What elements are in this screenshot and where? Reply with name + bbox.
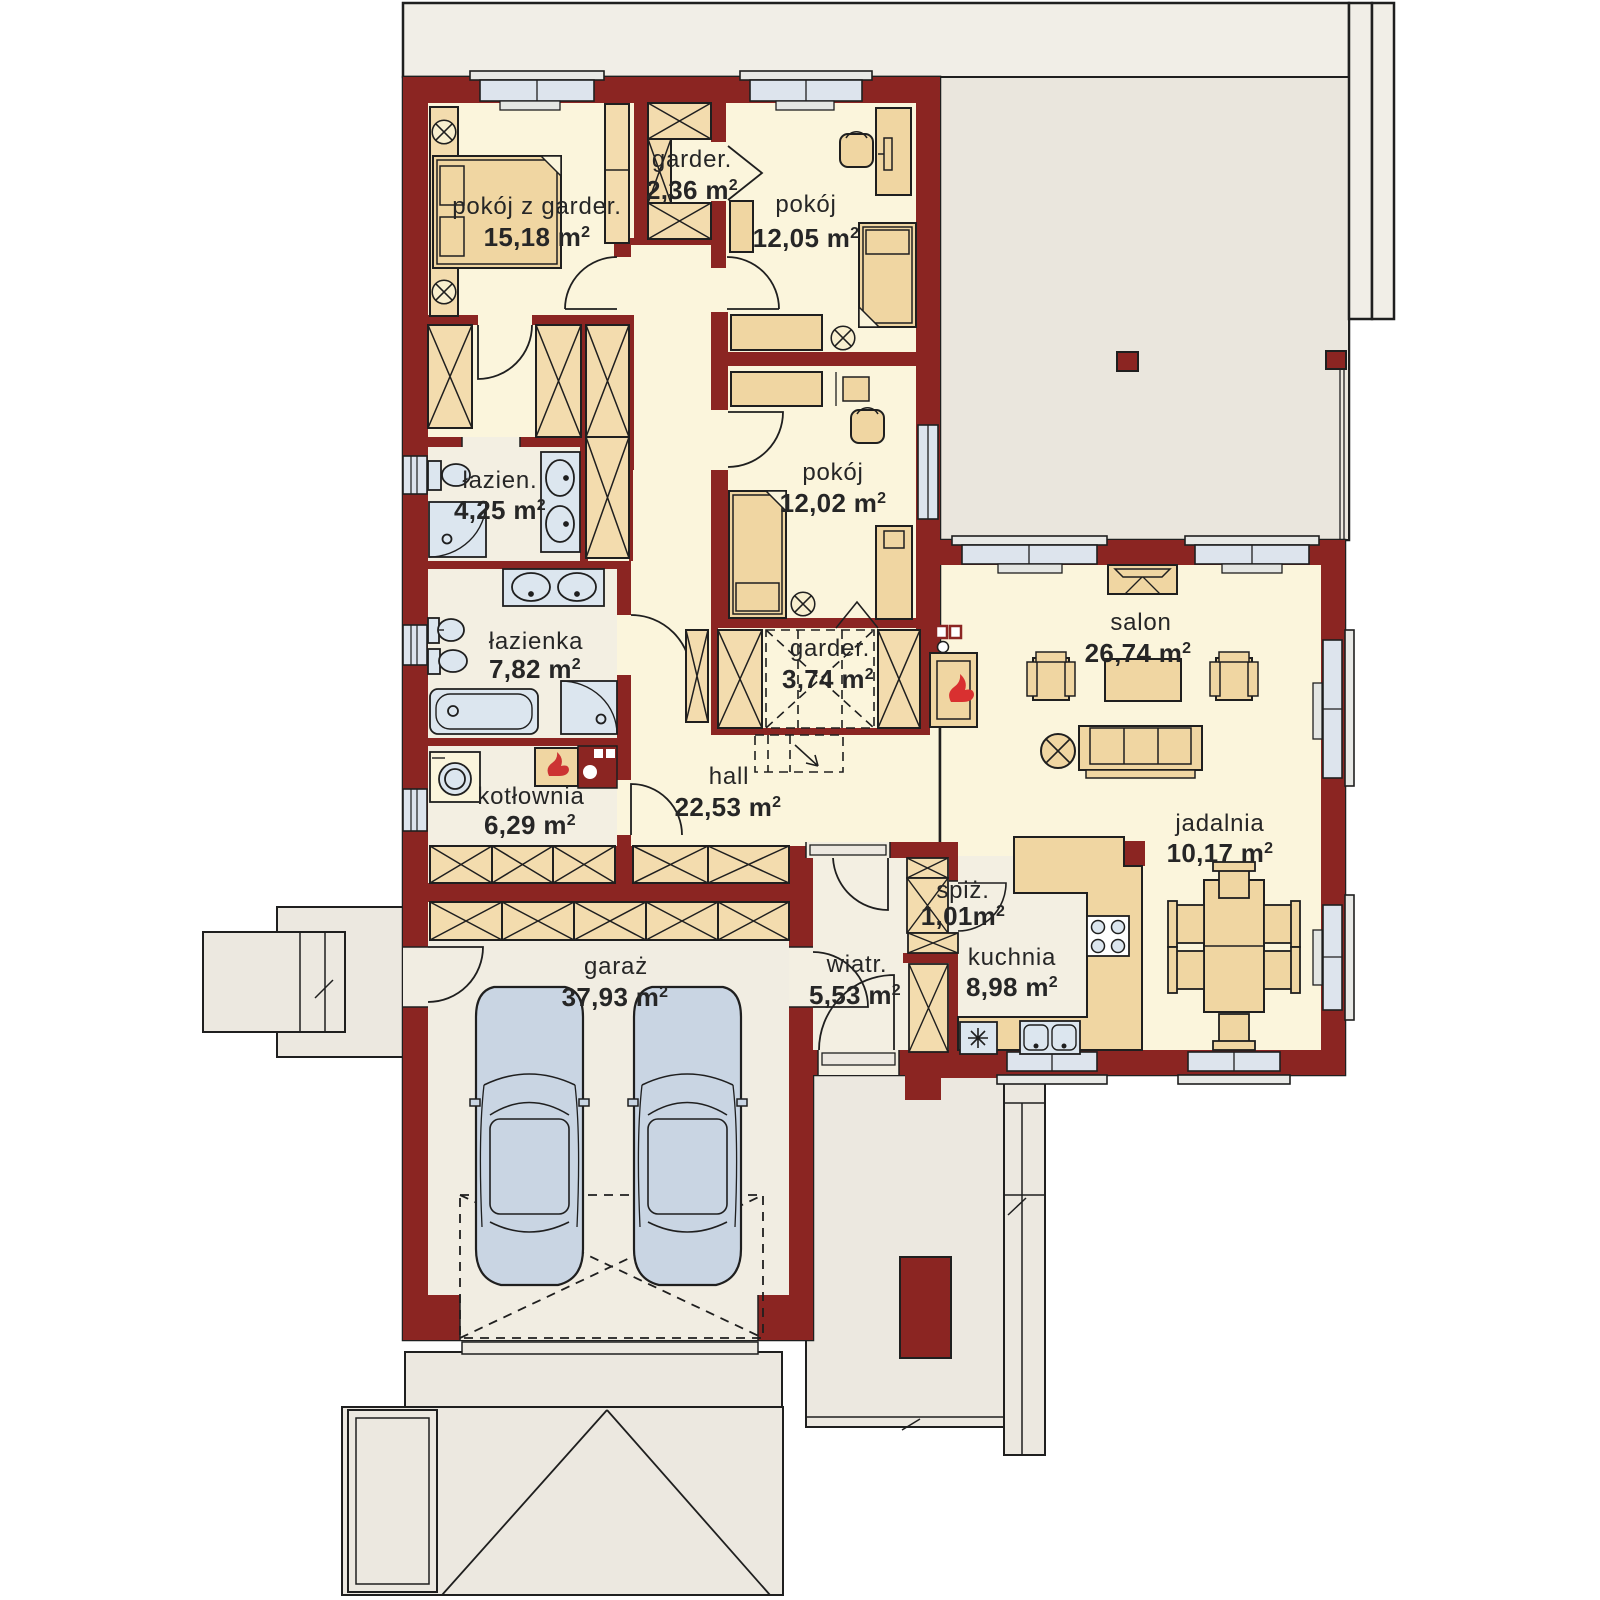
svg-text:37,93 m2: 37,93 m2	[562, 982, 669, 1012]
svg-text:łazienka: łazienka	[489, 628, 583, 655]
svg-text:pokój z garder.: pokój z garder.	[452, 193, 621, 220]
svg-text:garder.: garder.	[790, 635, 870, 662]
svg-text:łazien.: łazien.	[463, 467, 538, 494]
svg-text:1,01m2: 1,01m2	[921, 901, 1005, 931]
svg-text:salon: salon	[1110, 609, 1171, 636]
svg-text:garder.: garder.	[652, 146, 732, 173]
svg-text:kotłownia: kotłownia	[477, 783, 584, 810]
svg-text:10,17 m2: 10,17 m2	[1167, 838, 1274, 868]
svg-text:2,36 m2: 2,36 m2	[646, 175, 738, 205]
svg-text:pokój: pokój	[802, 459, 863, 486]
svg-text:5,53 m2: 5,53 m2	[809, 980, 901, 1010]
svg-text:12,05 m2: 12,05 m2	[753, 223, 860, 253]
svg-text:3,74 m2: 3,74 m2	[782, 664, 874, 694]
svg-text:8,98 m2: 8,98 m2	[966, 972, 1058, 1002]
svg-text:22,53 m2: 22,53 m2	[675, 792, 782, 822]
svg-text:15,18 m2: 15,18 m2	[484, 222, 591, 252]
svg-text:6,29 m2: 6,29 m2	[484, 810, 576, 840]
svg-text:garaż: garaż	[584, 953, 648, 980]
svg-text:7,82 m2: 7,82 m2	[489, 654, 581, 684]
svg-text:spiż.: spiż.	[936, 877, 989, 904]
svg-text:4,25 m2: 4,25 m2	[454, 495, 546, 525]
svg-text:26,74 m2: 26,74 m2	[1085, 638, 1192, 668]
svg-text:pokój: pokój	[775, 191, 836, 218]
svg-text:jadalnia: jadalnia	[1174, 810, 1264, 837]
svg-text:kuchnia: kuchnia	[968, 944, 1056, 971]
svg-text:12,02 m2: 12,02 m2	[780, 488, 887, 518]
svg-text:wiatr.: wiatr.	[826, 951, 888, 978]
svg-text:hall: hall	[709, 763, 750, 790]
